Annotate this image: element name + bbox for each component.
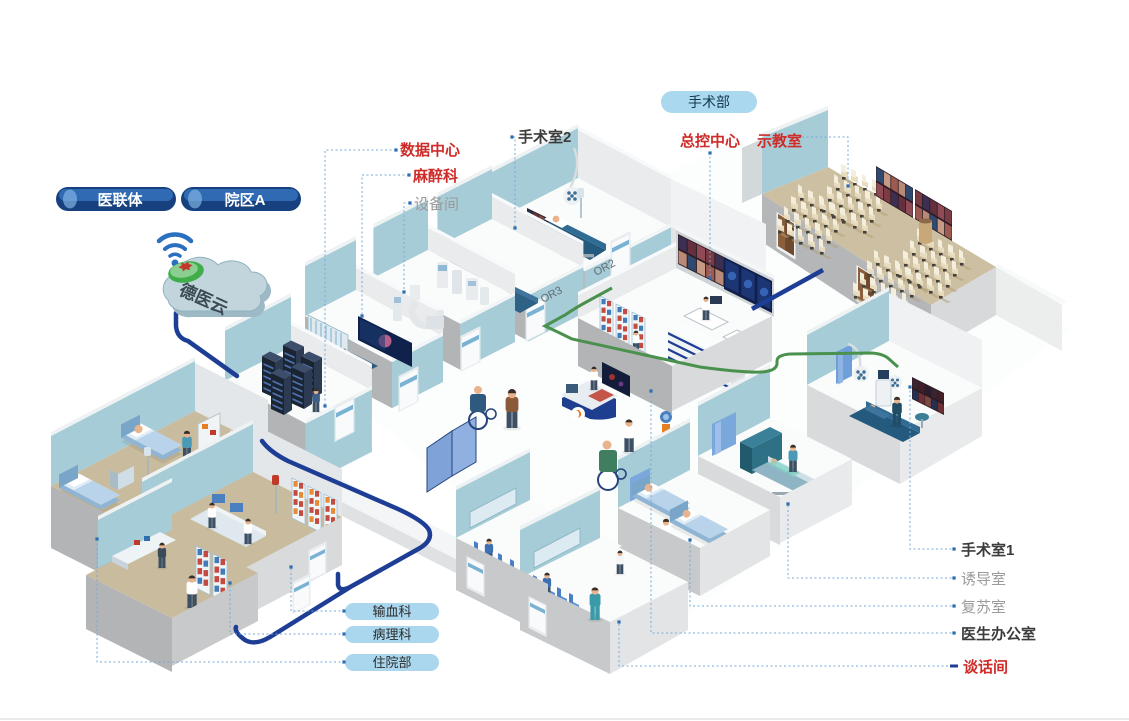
svg-text:住院部: 住院部 xyxy=(372,655,411,670)
svg-text:诱导室: 诱导室 xyxy=(961,571,1006,588)
svg-text:院区A: 院区A xyxy=(225,191,266,209)
svg-text:麻醉科: 麻醉科 xyxy=(412,167,458,185)
svg-text:手术室1: 手术室1 xyxy=(961,541,1014,559)
svg-text:总控中心: 总控中心 xyxy=(680,132,740,150)
svg-text:数据中心: 数据中心 xyxy=(400,141,460,159)
svg-text:病理科: 病理科 xyxy=(372,627,411,642)
svg-text:医生办公室: 医生办公室 xyxy=(961,625,1036,643)
svg-text:医联体: 医联体 xyxy=(97,191,143,209)
svg-text:示教室: 示教室 xyxy=(757,132,802,150)
svg-text:复苏室: 复苏室 xyxy=(961,598,1006,616)
svg-text:输血科: 输血科 xyxy=(372,604,411,619)
svg-text:设备间: 设备间 xyxy=(414,196,459,213)
svg-text:手术部: 手术部 xyxy=(688,94,730,110)
svg-text:手术室2: 手术室2 xyxy=(518,128,571,146)
svg-text:谈话间: 谈话间 xyxy=(963,658,1008,676)
